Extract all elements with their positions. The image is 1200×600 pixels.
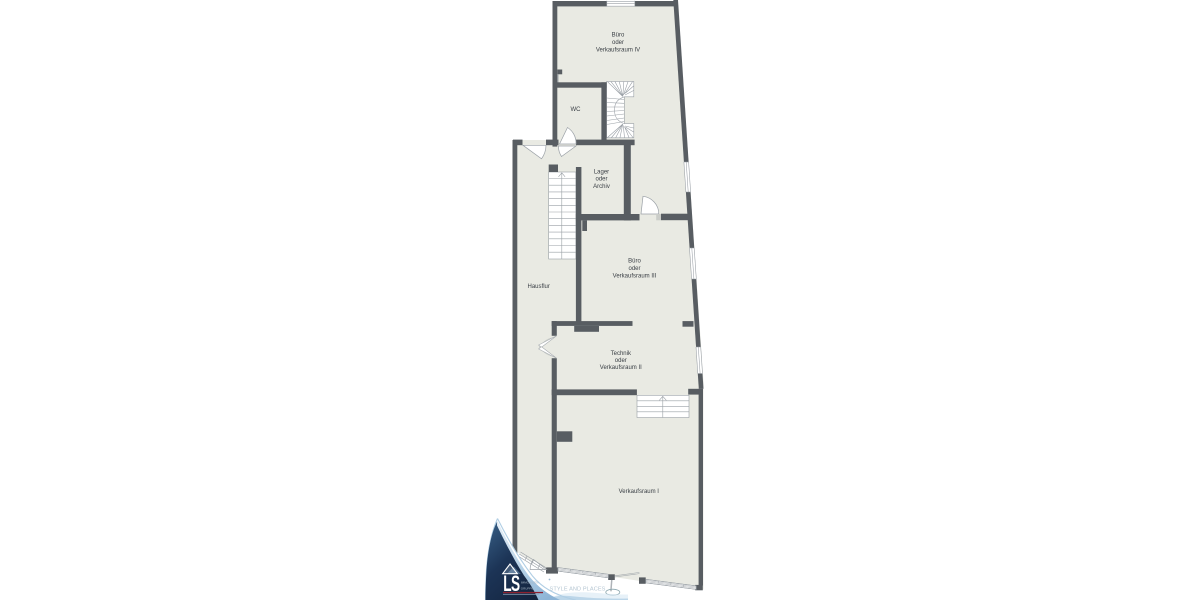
svg-text:IMMOBILIEN: IMMOBILIEN xyxy=(521,580,539,584)
svg-text:STYLE AND PLACES: STYLE AND PLACES xyxy=(550,587,606,593)
svg-text:GRUPPE: GRUPPE xyxy=(521,586,534,590)
svg-text:Büro: Büro xyxy=(612,33,625,39)
svg-text:oder: oder xyxy=(615,358,627,364)
svg-text:Büro: Büro xyxy=(628,259,641,265)
svg-text:Verkaufsraum I: Verkaufsraum I xyxy=(619,489,660,495)
svg-text:Verkaufsraum III: Verkaufsraum III xyxy=(613,274,657,280)
svg-text:oder: oder xyxy=(628,266,640,272)
svg-text:oder: oder xyxy=(612,40,624,46)
svg-text:WC: WC xyxy=(571,107,582,113)
svg-text:Lager: Lager xyxy=(594,169,609,175)
svg-text:oder: oder xyxy=(595,177,607,183)
svg-text:Archiv: Archiv xyxy=(593,184,610,190)
svg-text:LS: LS xyxy=(503,570,520,595)
svg-text:Hausflur: Hausflur xyxy=(528,284,550,290)
svg-text:Verkaufsraum IV: Verkaufsraum IV xyxy=(596,47,640,53)
svg-text:Technik: Technik xyxy=(611,351,632,357)
svg-text:Verkaufsraum II: Verkaufsraum II xyxy=(600,365,642,371)
